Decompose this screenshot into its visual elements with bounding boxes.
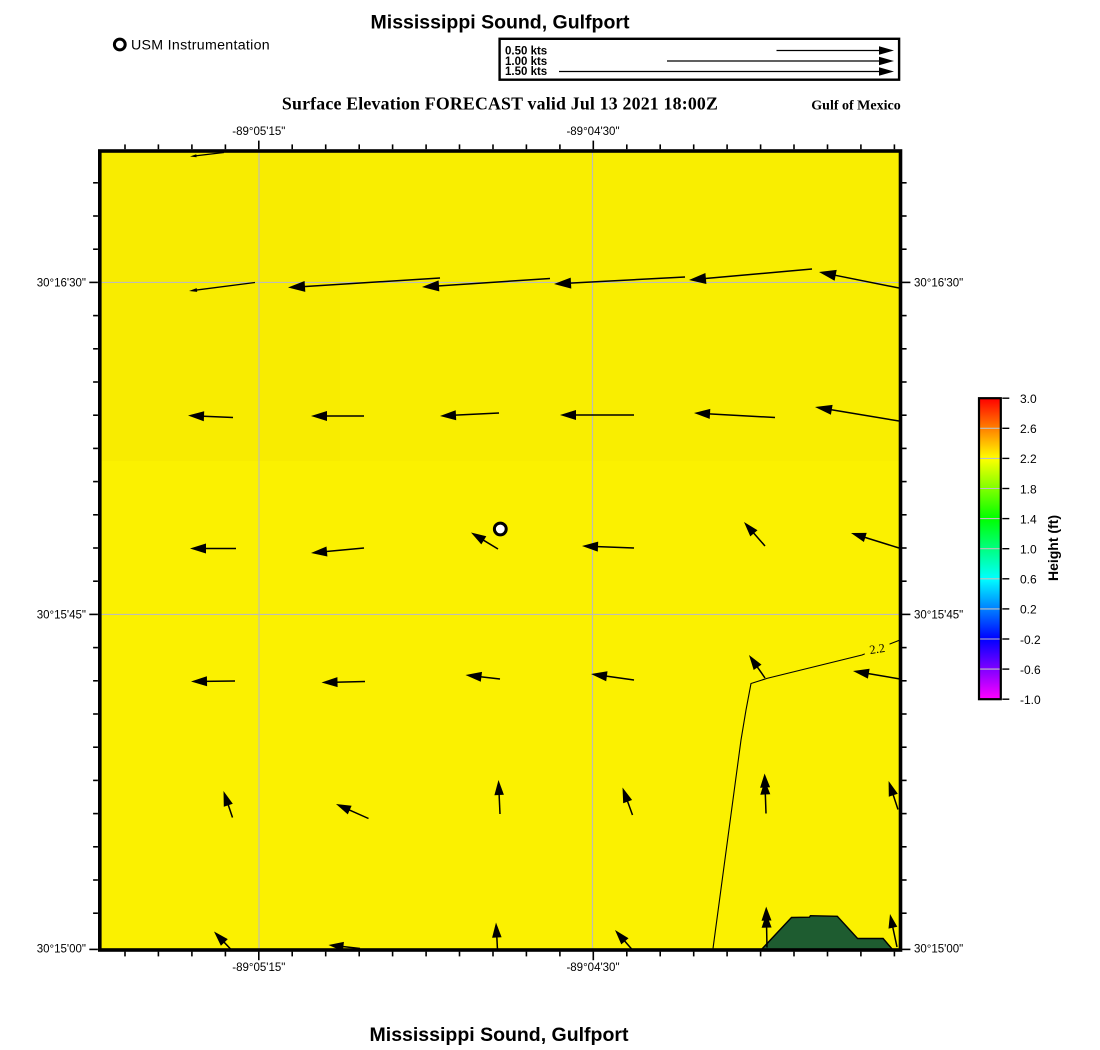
svg-text:-89°05'15": -89°05'15"	[232, 962, 285, 974]
svg-text:Height (ft): Height (ft)	[1045, 515, 1061, 581]
svg-text:1.4: 1.4	[1020, 512, 1037, 526]
svg-text:Mississippi Sound, Gulfport: Mississippi Sound, Gulfport	[370, 1024, 629, 1046]
svg-text:30°15'00": 30°15'00"	[37, 944, 86, 956]
svg-text:30°16'30": 30°16'30"	[914, 278, 963, 290]
svg-text:-89°05'15": -89°05'15"	[232, 126, 285, 138]
svg-text:-89°04'30": -89°04'30"	[566, 126, 619, 138]
svg-text:1.8: 1.8	[1020, 482, 1037, 496]
svg-text:30°15'45": 30°15'45"	[914, 610, 963, 622]
svg-text:2.6: 2.6	[1020, 422, 1037, 436]
svg-text:0.2: 0.2	[1020, 603, 1037, 617]
svg-text:30°15'45": 30°15'45"	[37, 610, 86, 622]
svg-text:3.0: 3.0	[1020, 392, 1037, 406]
svg-text:-0.2: -0.2	[1020, 633, 1041, 647]
svg-text:30°15'00": 30°15'00"	[914, 944, 963, 956]
svg-text:Mississippi Sound, Gulfport: Mississippi Sound, Gulfport	[371, 11, 630, 33]
svg-text:2.2: 2.2	[1020, 452, 1037, 466]
svg-text:2.2: 2.2	[868, 641, 886, 657]
svg-text:-1.0: -1.0	[1020, 693, 1041, 707]
svg-text:Gulf of Mexico: Gulf of Mexico	[811, 99, 900, 114]
svg-text:1.0: 1.0	[1020, 543, 1037, 557]
svg-text:-89°04'30": -89°04'30"	[566, 962, 619, 974]
svg-text:USM Instrumentation: USM Instrumentation	[131, 38, 270, 54]
svg-text:-0.6: -0.6	[1020, 663, 1041, 677]
svg-text:1.50 kts: 1.50 kts	[505, 66, 547, 78]
svg-text:Surface Elevation FORECAST val: Surface Elevation FORECAST valid Jul 13 …	[282, 94, 718, 114]
svg-text:30°16'30": 30°16'30"	[37, 278, 86, 290]
svg-text:0.6: 0.6	[1020, 573, 1037, 587]
